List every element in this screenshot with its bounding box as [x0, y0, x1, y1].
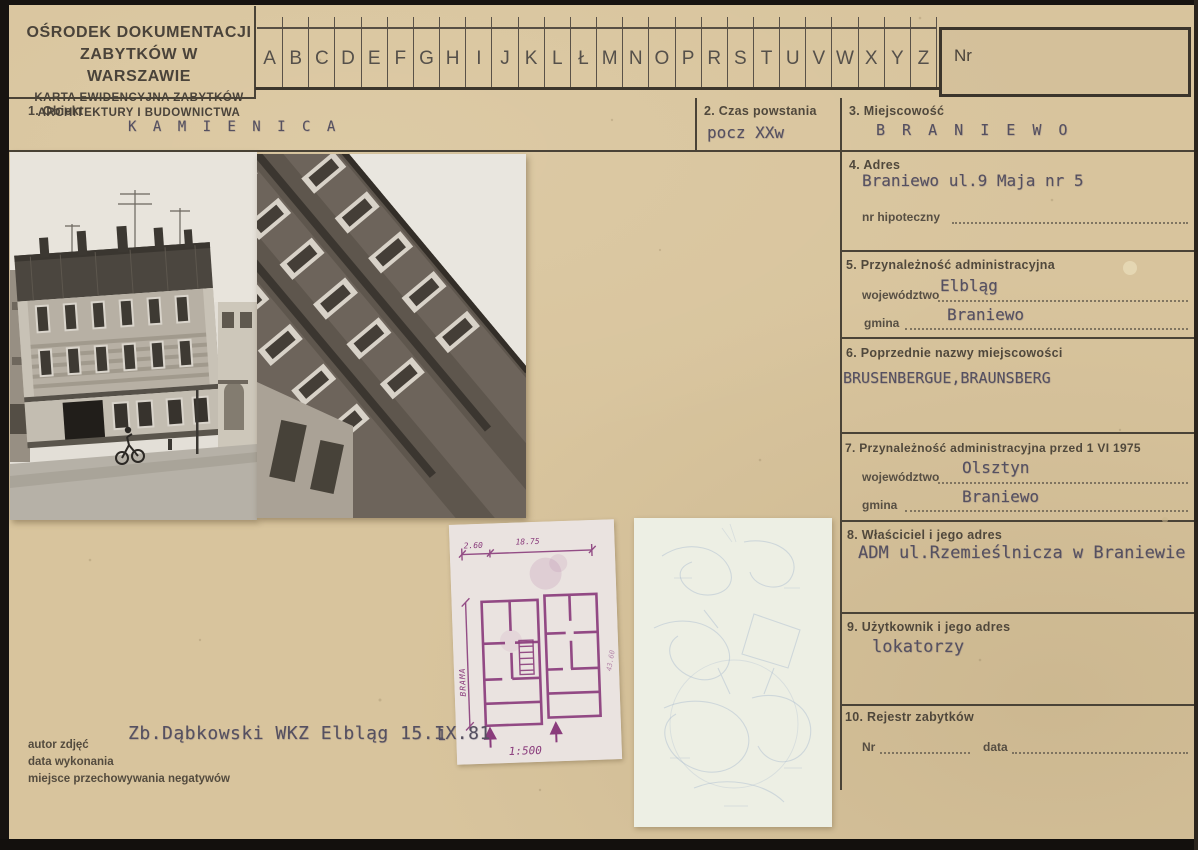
plan-scale-label: 1:500	[509, 744, 543, 758]
gmina-label: gmina	[864, 316, 899, 330]
alphabet-top-rule	[257, 27, 937, 29]
nr-box-label: Nr	[954, 46, 972, 66]
plan-dim-top: 18.75	[515, 537, 540, 547]
field-przynaleznosc-1975-label: 7. Przynależność administracyjna przed 1…	[845, 441, 1141, 455]
org-name-line2: ZABYTKÓW W WARSZAWIE	[26, 44, 252, 88]
photo-credit-label: data wykonania	[28, 754, 230, 771]
rejestr-nr-line	[880, 752, 970, 754]
photo-facade-closeup	[257, 154, 526, 518]
sep-7-8	[841, 520, 1198, 522]
nr-box: Nr	[939, 27, 1191, 97]
field-rejestr-label: 10. Rejestr zabytków	[845, 710, 974, 724]
field-czas-value: pocz XXw	[707, 123, 784, 142]
header-bottom-rule	[0, 97, 256, 99]
wojewodztwo-1975-label: województwo	[862, 470, 939, 484]
photo-street-facade	[10, 152, 257, 520]
rejestr-nr-label: Nr	[862, 740, 875, 754]
field-poprzednie-nazwy-label: 6. Poprzednie nazwy miejscowości	[846, 346, 1063, 360]
wojewodztwo-1975-value: Olsztyn	[962, 458, 1029, 477]
field-adres-value: Braniewo ul.9 Maja nr 5	[862, 171, 1084, 190]
sep-8-9	[841, 612, 1198, 614]
gmina-1975-line	[905, 510, 1188, 512]
field-miejscowosc-label: 3. Miejscowość	[849, 104, 944, 118]
photo-street-facade-image	[10, 152, 257, 520]
gmina-value: Braniewo	[947, 305, 1024, 324]
gmina-1975-label: gmina	[862, 498, 897, 512]
scan-edge-right	[1194, 0, 1198, 850]
scanned-record-card: OŚRODEK DOKUMENTACJI ZABYTKÓW W WARSZAWI…	[0, 0, 1198, 850]
gmina-line	[905, 328, 1188, 330]
nr-hipoteczny-line	[952, 222, 1188, 224]
rejestr-data-label: data	[983, 740, 1008, 754]
header-divider	[254, 6, 256, 98]
wojewodztwo-1975-line	[938, 482, 1188, 484]
tracing-paper-map	[634, 518, 832, 827]
field-obiekt-value: K A M I E N I C A	[128, 119, 339, 135]
sep-6-7	[841, 432, 1198, 434]
photo-facade-closeup-image	[257, 154, 526, 518]
photo-credit-labels: autor zdjęćdata wykonaniamiejsce przecho…	[28, 737, 230, 788]
scan-edge-left	[0, 0, 9, 850]
scan-edge-bottom	[0, 839, 1198, 850]
field-wlasciciel-value: ADM ul.Rzemieślnicza w Braniewie	[858, 543, 1186, 563]
divider-field1-2	[695, 98, 697, 151]
plan-dim-left: 2.60	[463, 541, 483, 551]
photo-credit-label: autor zdjęć	[28, 737, 230, 754]
sep-4-5	[841, 250, 1198, 252]
wojewodztwo-label: województwo	[862, 288, 939, 302]
nr-hipoteczny-label: nr hipoteczny	[862, 210, 940, 224]
wojewodztwo-line	[938, 300, 1188, 302]
gmina-1975-value: Braniewo	[962, 487, 1039, 506]
photo-credit-label: miejsce przechowywania negatywów	[28, 771, 230, 788]
field-czas-label: 2. Czas powstania	[704, 104, 817, 118]
field-uzytkownik-value: lokatorzy	[872, 637, 964, 657]
field-miejscowosc-value: B R A N I E W O	[876, 121, 1071, 139]
field-wlasciciel-label: 8. Właściciel i jego adres	[847, 528, 1002, 542]
rejestr-data-line	[1012, 752, 1188, 754]
sep-5-6	[841, 337, 1198, 339]
field-adres-label: 4. Adres	[849, 158, 900, 172]
sep-9-10	[841, 704, 1198, 706]
scan-edge-top	[0, 0, 1198, 5]
right-column-divider	[840, 98, 842, 790]
wojewodztwo-value: Elbląg	[940, 276, 998, 295]
plan-brama-label: BRAMA	[458, 667, 468, 696]
field-poprzednie-nazwy-value: BRUSENBERGUE,BRAUNSBERG	[843, 369, 1051, 387]
alphabet-bottom-rule	[255, 87, 939, 90]
field-przynaleznosc-label: 5. Przynależność administracyjna	[846, 258, 1055, 272]
org-name-line1: OŚRODEK DOKUMENTACJI	[26, 22, 252, 44]
field-obiekt-label: 1. Obiekt	[28, 104, 84, 118]
tracing-paper-sketch	[634, 518, 832, 827]
field-uzytkownik-label: 9. Użytkownik i jego adres	[847, 620, 1010, 634]
